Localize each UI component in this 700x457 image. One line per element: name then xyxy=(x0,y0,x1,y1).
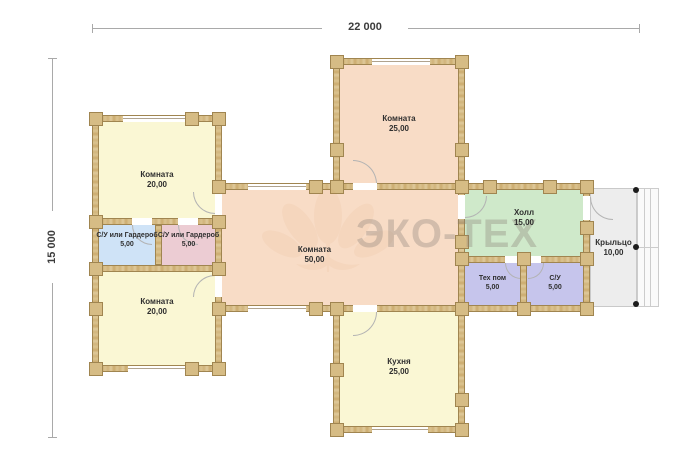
wall-left-block-mid2 xyxy=(92,265,222,272)
door-opening xyxy=(215,274,222,297)
wall-tech-bath-divider xyxy=(520,263,527,305)
room-area: 20,00 xyxy=(147,180,167,190)
porch-steps xyxy=(637,188,659,307)
label-room-top-center: Комната 25,00 xyxy=(340,65,458,183)
window xyxy=(128,366,185,372)
window xyxy=(123,116,185,122)
label-room-left-bottom: Комната 20,00 xyxy=(99,272,215,342)
room-name: Холл xyxy=(514,208,534,218)
door-opening xyxy=(215,192,222,215)
label-porch: Крыльцо 10,00 xyxy=(590,188,637,307)
window xyxy=(372,427,428,433)
dimension-tick xyxy=(92,24,93,33)
wall-left-block-right xyxy=(215,115,222,372)
door-opening xyxy=(583,196,590,220)
label-bathroom: С/У 5,00 xyxy=(527,263,583,305)
label-closet-blue: С/У или Гардероб 5,00 xyxy=(99,225,155,257)
room-name: Комната xyxy=(382,114,415,124)
room-area: 5,00 xyxy=(120,241,134,250)
log-joint xyxy=(212,112,226,126)
room-area: 5,00 xyxy=(548,284,562,293)
room-name: Кухня xyxy=(387,357,410,367)
room-name: С/У xyxy=(549,275,560,284)
dimension-tick xyxy=(48,58,57,59)
dimension-width-label: 22 000 xyxy=(322,21,408,33)
log-joint xyxy=(455,423,469,437)
dimension-height-label: 15 000 xyxy=(46,211,58,283)
label-closet-pink: С/У или Гардероб 5,00 xyxy=(162,225,215,257)
wall-top-room-left xyxy=(333,58,340,190)
label-kitchen: Кухня 25,00 xyxy=(340,312,458,422)
wall-left-block-left xyxy=(92,115,99,372)
label-hall: Холл 15,00 xyxy=(465,190,583,246)
room-name: С/У или Гардероб xyxy=(158,232,219,241)
room-area: 20,00 xyxy=(147,307,167,317)
wall-closet-divider xyxy=(155,225,162,265)
log-joint xyxy=(185,362,199,376)
room-area: 10,00 xyxy=(603,248,623,258)
label-tech-room: Тех пом 5,00 xyxy=(465,263,520,305)
room-name: С/У или Гардероб xyxy=(96,232,157,241)
label-room-center: Комната 50,00 xyxy=(222,200,407,310)
label-room-left-top: Комната 20,00 xyxy=(99,130,215,230)
wall-kitchen-right xyxy=(458,305,465,433)
room-name: Комната xyxy=(298,245,331,255)
log-joint xyxy=(212,362,226,376)
room-area: 50,00 xyxy=(304,255,324,265)
dimension-tick xyxy=(48,437,57,438)
room-area: 25,00 xyxy=(389,124,409,134)
log-joint xyxy=(330,423,344,437)
log-joint xyxy=(89,112,103,126)
floor-plan: 22 000 15 000 xyxy=(0,0,700,457)
log-joint xyxy=(185,112,199,126)
wall-top-room-right xyxy=(458,58,465,190)
room-name: Комната xyxy=(140,297,173,307)
log-joint xyxy=(89,362,103,376)
room-name: Комната xyxy=(140,170,173,180)
room-name: Тех пом xyxy=(479,275,506,284)
room-area: 15,00 xyxy=(514,218,534,228)
room-area: 5,00 xyxy=(182,241,196,250)
dimension-tick xyxy=(639,24,640,33)
room-area: 25,00 xyxy=(389,367,409,377)
room-area: 5,00 xyxy=(486,284,500,293)
room-name: Крыльцо xyxy=(595,238,631,248)
